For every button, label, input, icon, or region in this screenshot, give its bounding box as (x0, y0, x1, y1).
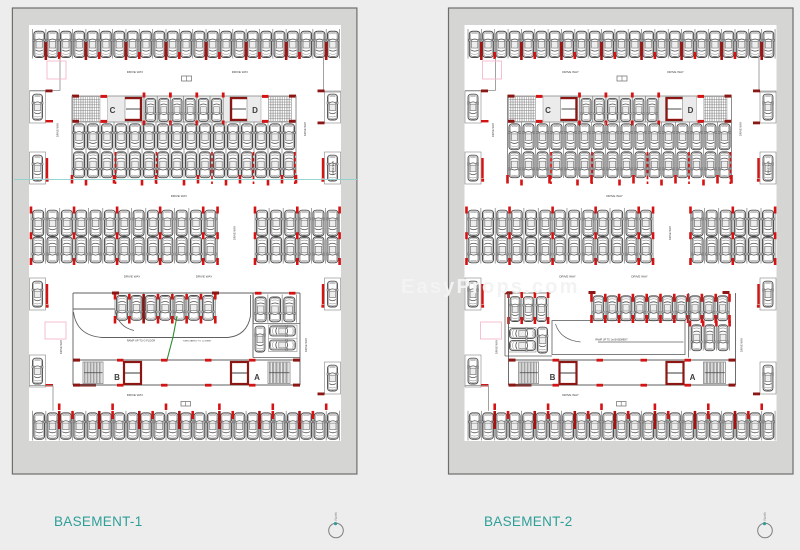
svg-text:DRIVE WAY: DRIVE WAY (304, 338, 308, 353)
svg-text:C: C (545, 106, 551, 115)
svg-text:DRIVE WAY: DRIVE WAY (127, 70, 144, 74)
svg-text:A: A (254, 373, 260, 382)
svg-text:DRIVE WAY: DRIVE WAY (606, 194, 623, 198)
svg-text:DRIVE WAY: DRIVE WAY (331, 161, 335, 176)
svg-text:DRIVE WAY: DRIVE WAY (739, 122, 743, 137)
svg-text:A: A (690, 373, 696, 382)
svg-text:DRIVE WAY: DRIVE WAY (56, 123, 60, 138)
svg-text:DRIVE WAY: DRIVE WAY (495, 340, 499, 355)
svg-text:DRIVE WAY: DRIVE WAY (740, 338, 744, 353)
svg-text:DRIVE WAY: DRIVE WAY (767, 161, 771, 176)
svg-text:B: B (550, 373, 556, 382)
svg-text:D: D (252, 106, 258, 115)
svg-text:DRIVE WAY: DRIVE WAY (233, 226, 237, 241)
svg-text:DRIVE WAY: DRIVE WAY (59, 340, 63, 355)
svg-text:TURN SAFELY TO 1st BSMT: TURN SAFELY TO 1st BSMT (183, 340, 212, 343)
svg-text:DRIVE WAY: DRIVE WAY (491, 123, 495, 138)
svg-text:DRIVE WAY: DRIVE WAY (303, 122, 307, 137)
svg-text:RAMP UP TO G FLOOR: RAMP UP TO G FLOOR (127, 339, 155, 343)
svg-text:DRIVE WAY: DRIVE WAY (124, 275, 141, 279)
svg-text:North: North (763, 512, 767, 520)
svg-text:RAMP UP TO 1st BASEMENT: RAMP UP TO 1st BASEMENT (595, 339, 628, 342)
svg-text:DRIVE WAY: DRIVE WAY (232, 70, 249, 74)
svg-text:DRIVE WAY: DRIVE WAY (562, 70, 579, 74)
svg-text:D: D (688, 106, 694, 115)
svg-text:DRIVE WAY: DRIVE WAY (631, 275, 648, 279)
svg-text:DRIVE WAY: DRIVE WAY (668, 226, 672, 241)
svg-text:C: C (110, 106, 116, 115)
svg-text:North: North (334, 512, 338, 520)
svg-text:DRIVE WAY: DRIVE WAY (667, 70, 684, 74)
svg-text:DRIVE WAY: DRIVE WAY (127, 393, 144, 397)
svg-text:DRIVE WAY: DRIVE WAY (562, 393, 579, 397)
svg-text:DRIVE WAY: DRIVE WAY (171, 194, 188, 198)
svg-text:B: B (114, 373, 120, 382)
svg-text:DRIVE WAY: DRIVE WAY (196, 275, 213, 279)
